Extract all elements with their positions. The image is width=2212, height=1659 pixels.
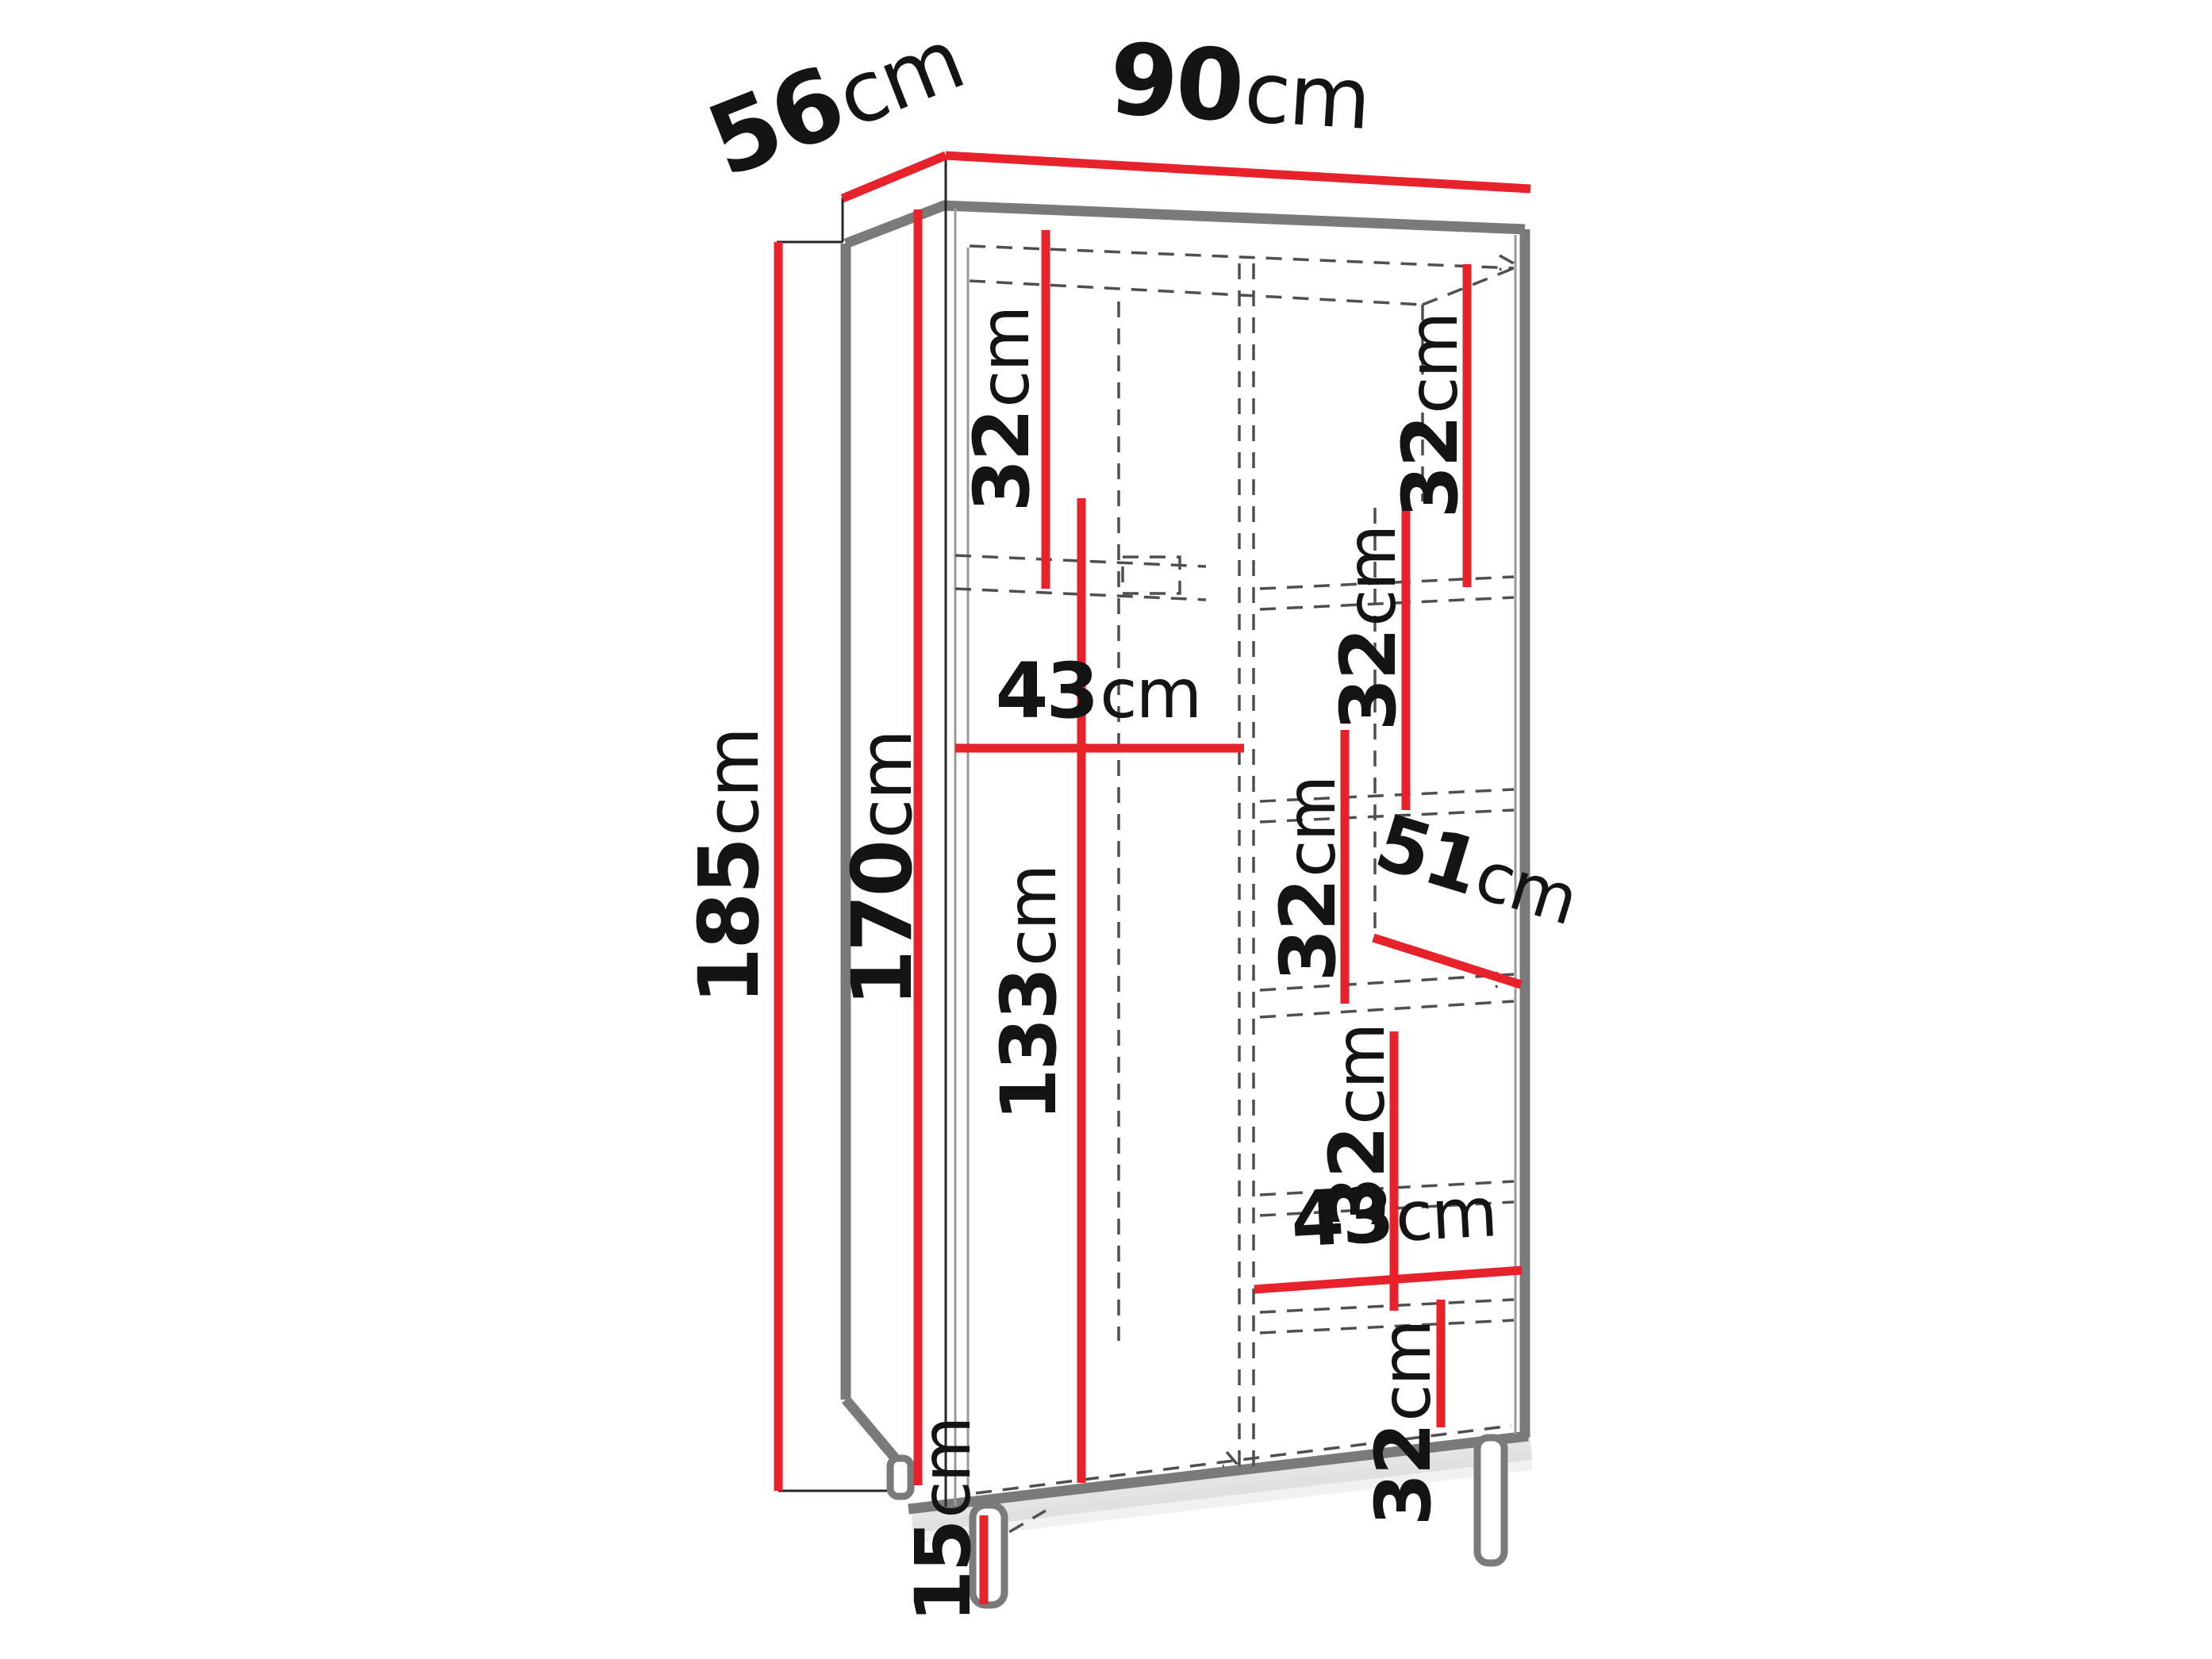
dim-label-shelf-depth: 51cm xyxy=(1366,797,1588,943)
diagram-page: 90cm 56cm 185cm 170cm 32cm 43cm 133cm 15… xyxy=(0,0,2212,1659)
dim-label-left-top-shelf: 32cm xyxy=(958,307,1046,513)
dim-label-right-shelf-2: 32cm xyxy=(1324,526,1413,732)
top-front-edge xyxy=(846,205,1525,244)
dim-label-carcass-height: 170cm xyxy=(834,731,931,1007)
dim-label-right-shelf-1: 32cm xyxy=(1386,313,1475,519)
wardrobe-diagram: 90cm 56cm 185cm 170cm 32cm 43cm 133cm 15… xyxy=(0,0,2212,1659)
dim-label-right-shelf-3: 32cm xyxy=(1264,777,1353,982)
dimension-labels: 90cm 56cm 185cm 170cm 32cm 43cm 133cm 15… xyxy=(681,0,1588,1623)
dim-label-depth: 56cm xyxy=(693,0,977,200)
dim-label-hanging-space: 133cm xyxy=(985,866,1073,1121)
dim-line-right-width-43 xyxy=(1254,1270,1522,1289)
interior-top-front xyxy=(970,246,1514,268)
dim-line-width-90 xyxy=(946,156,1530,189)
dim-label-left-width: 43cm xyxy=(996,647,1201,735)
front-right-leg xyxy=(1477,1438,1504,1563)
shelfE-front xyxy=(1260,1300,1514,1312)
dim-label-right-shelf-5: 32cm xyxy=(1359,1321,1448,1527)
dim-line-shelf-depth-51 xyxy=(1373,938,1521,985)
dim-label-total-height: 185cm xyxy=(681,728,778,1004)
dim-label-width: 90cm xyxy=(1106,22,1373,152)
dim-line-depth-56 xyxy=(843,156,946,198)
back-left-chamfer xyxy=(846,1400,897,1460)
shelfC-bottom xyxy=(1260,1001,1514,1017)
interior-top-back xyxy=(970,281,1423,305)
arrow-bottom-center xyxy=(1223,1452,1236,1466)
